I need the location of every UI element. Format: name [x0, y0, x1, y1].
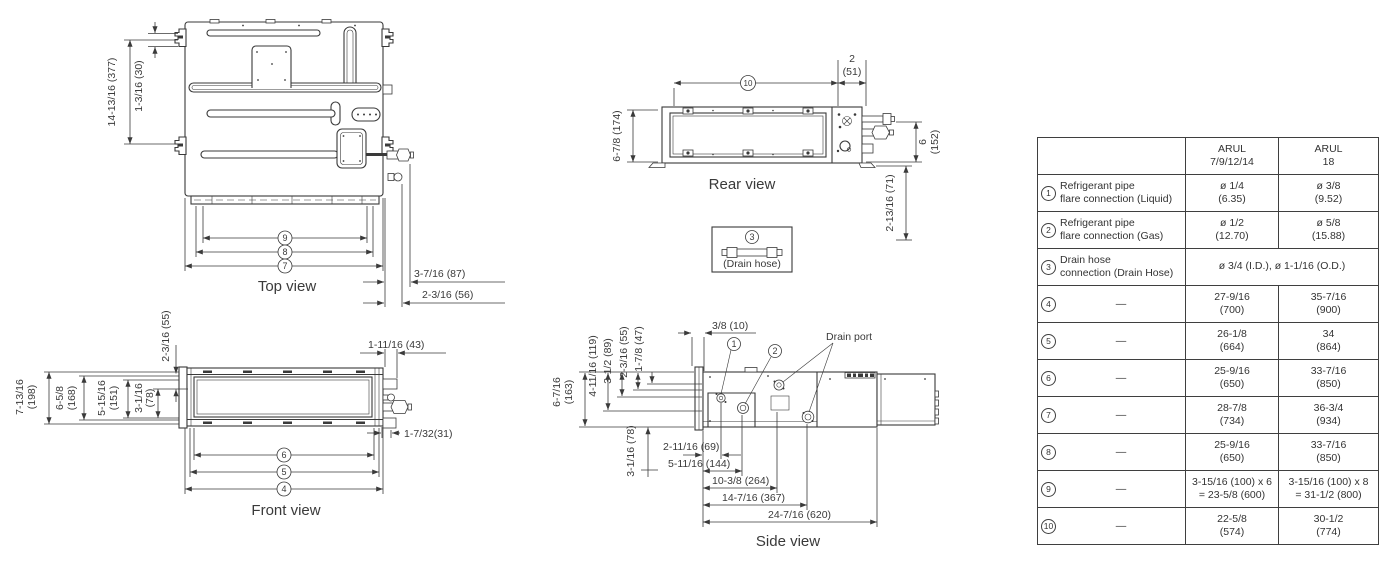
dim-label: 3/8 (10)	[712, 320, 748, 332]
dim-label: (198)	[26, 385, 38, 410]
row-description: —	[1060, 520, 1182, 533]
ref-circle-2: 2	[772, 346, 777, 356]
dim-label: 2-13/16 (71)	[884, 174, 896, 231]
row-value-arul-18: 33-7/16 (850)	[1279, 434, 1379, 471]
side-view: 1 2 Drain port 3/8 (10) 6-7/16 (163) 4-1…	[551, 320, 939, 550]
mounting-plate	[252, 46, 291, 88]
row-description: Refrigerant pipe flare connection (Gas)	[1060, 217, 1182, 242]
ref-num: 6	[1041, 371, 1056, 386]
ref-num: 8	[1041, 445, 1056, 460]
row-description: Refrigerant pipe flare connection (Liqui…	[1060, 180, 1182, 205]
rear-view: 10 2 (51) 6-7/8 (174) 6 (152) 2-13/16 (7…	[611, 53, 941, 240]
table-row: 5— 26-1/8 (664) 34 (864)	[1038, 323, 1379, 360]
drain-hose-legend: 3 (Drain hose)	[712, 227, 792, 272]
gas-pipe-port	[738, 403, 749, 414]
small-bolt-pipe	[388, 173, 402, 181]
dim-label: 2-3/16 (55)	[618, 326, 630, 377]
row-value-arul-7-14: 28-7/8 (734)	[1186, 397, 1279, 434]
dim-label: (152)	[929, 130, 941, 155]
row-value-arul-7-14: 3-15/16 (100) x 6 = 23-5/8 (600)	[1186, 471, 1279, 508]
dim-label: 6-7/16	[551, 377, 563, 407]
drain-port-label: Drain port	[826, 331, 872, 343]
ref-num: 10	[1041, 519, 1056, 534]
dim-label: 10-3/8 (264)	[712, 475, 769, 487]
top-view: 14-13/16 (377) 1-3/16 (30) 9 8 7 3-7/16 …	[106, 20, 505, 308]
row-value-arul-7-14: 22-5/8 (574)	[1186, 508, 1279, 545]
side-view-unit-outline	[703, 372, 877, 427]
ref-num: 5	[1041, 334, 1056, 349]
row-value-arul-7-14: 25-9/16 (650)	[1186, 434, 1279, 471]
front-view-title: Front view	[251, 502, 320, 519]
ref-num: 4	[1041, 297, 1056, 312]
col-header-arul-7-14: ARUL 7/9/12/14	[1186, 138, 1279, 175]
table-row: 7— 28-7/8 (734) 36-3/4 (934)	[1038, 397, 1379, 434]
dim-label: (51)	[843, 66, 862, 78]
front-pipes	[383, 379, 412, 428]
ref-circle-7: 7	[282, 261, 287, 271]
header-empty	[1038, 138, 1186, 175]
drain-hose-caption: (Drain hose)	[723, 258, 781, 270]
dim-label: 6	[917, 139, 929, 145]
row-value-both: ø 3/4 (I.D.), ø 1-1/16 (O.D.)	[1186, 249, 1379, 286]
top-view-title: Top view	[258, 278, 317, 295]
dim-label: 1-3/16 (30)	[133, 60, 145, 111]
dim-label: 2-3/16 (55)	[160, 310, 172, 361]
row-description: Drain hose connection (Drain Hose)	[1060, 254, 1182, 279]
table-row: 3Drain hose connection (Drain Hose) ø 3/…	[1038, 249, 1379, 286]
dim-label: 14-13/16 (377)	[106, 58, 118, 127]
row-description: —	[1060, 372, 1182, 385]
side-tab	[383, 85, 392, 94]
dim-label: 3-1/2 (89)	[602, 338, 614, 384]
ref-num: 3	[1041, 260, 1056, 275]
dim-label: 3-7/16 (87)	[414, 268, 465, 280]
dim-label: 24-7/16 (620)	[768, 509, 831, 521]
drain-hose-icon	[722, 248, 782, 258]
ref-num: 1	[1041, 186, 1056, 201]
front-view: 7-13/16 (198) 6-5/8 (168) 5-15/16 (151) …	[14, 310, 452, 519]
ref-circle-6: 6	[281, 450, 286, 460]
row-description: —	[1060, 483, 1182, 496]
dim-label: (78)	[144, 389, 156, 408]
table-header-row: ARUL 7/9/12/14 ARUL 18	[1038, 138, 1379, 175]
row-value-arul-18: ø 5/8 (15.88)	[1279, 212, 1379, 249]
ref-circle-9: 9	[282, 233, 287, 243]
dimension-drawing-page: 14-13/16 (377) 1-3/16 (30) 9 8 7 3-7/16 …	[0, 0, 1395, 566]
dim-label: 1-11/16 (43)	[368, 339, 424, 351]
ref-num: 7	[1041, 408, 1056, 423]
dim-label: 6-7/8 (174)	[611, 110, 623, 161]
row-description: —	[1060, 335, 1182, 348]
row-description: —	[1060, 409, 1182, 422]
ref-circle-3: 3	[749, 232, 754, 242]
table-row: 6— 25-9/16 (650) 33-7/16 (850)	[1038, 360, 1379, 397]
dim-label: 2	[849, 53, 855, 65]
liquid-pipe-port	[717, 394, 725, 402]
row-value-arul-18: 34 (864)	[1279, 323, 1379, 360]
dim-label: 6-5/8	[54, 386, 66, 410]
ref-circle-8: 8	[282, 247, 287, 257]
row-value-arul-18: 35-7/16 (900)	[1279, 286, 1379, 323]
dim-label: 4-11/16 (119)	[587, 335, 599, 396]
dim-label: (163)	[563, 380, 575, 405]
ref-circle-5: 5	[281, 467, 286, 477]
ref-circle-10: 10	[744, 79, 753, 88]
dim-label: (168)	[66, 386, 78, 411]
dim-label: 14-7/16 (367)	[722, 492, 785, 504]
control-box	[877, 374, 935, 425]
dim-label: 1-7/32(31)	[404, 428, 452, 440]
row-value-arul-18: ø 3/8 (9.52)	[1279, 175, 1379, 212]
ref-num: 2	[1041, 223, 1056, 238]
row-value-arul-18: 30-1/2 (774)	[1279, 508, 1379, 545]
ref-circle-4: 4	[281, 484, 286, 494]
foot-right	[859, 163, 875, 168]
side-view-title: Side view	[756, 533, 820, 550]
row-value-arul-18: 33-7/16 (850)	[1279, 360, 1379, 397]
dim-label: (151)	[108, 386, 120, 411]
dim-label: 2-11/16 (69)	[663, 441, 719, 453]
dim-label: 7-13/16	[14, 379, 26, 415]
flare-valve	[387, 149, 414, 161]
table-row: 8— 25-9/16 (650) 33-7/16 (850)	[1038, 434, 1379, 471]
row-value-arul-7-14: ø 1/2 (12.70)	[1186, 212, 1279, 249]
row-value-arul-7-14: ø 1/4 (6.35)	[1186, 175, 1279, 212]
spec-table: ARUL 7/9/12/14 ARUL 18 1Refrigerant pipe…	[1037, 137, 1379, 545]
table-row: 10— 22-5/8 (574) 30-1/2 (774)	[1038, 508, 1379, 545]
row-description: —	[1060, 446, 1182, 459]
dim-label: 1-7/8 (47)	[633, 326, 645, 372]
row-value-arul-18: 36-3/4 (934)	[1279, 397, 1379, 434]
table-row: 9— 3-15/16 (100) x 6 = 23-5/8 (600) 3-15…	[1038, 471, 1379, 508]
rear-pipes	[862, 114, 895, 154]
ref-num: 9	[1041, 482, 1056, 497]
row-value-arul-7-14: 27-9/16 (700)	[1186, 286, 1279, 323]
row-value-arul-7-14: 25-9/16 (650)	[1186, 360, 1279, 397]
dim-label: 5-11/16 (144)	[668, 458, 730, 470]
dim-label: 2-3/16 (56)	[422, 289, 473, 301]
rear-view-title: Rear view	[709, 176, 776, 193]
col-header-arul-18: ARUL 18	[1279, 138, 1379, 175]
foot-left	[649, 163, 665, 168]
table-row: 2Refrigerant pipe flare connection (Gas)…	[1038, 212, 1379, 249]
ref-circle-1: 1	[731, 339, 736, 349]
front-left-flange	[179, 367, 187, 428]
table-row: 4— 27-9/16 (700) 35-7/16 (900)	[1038, 286, 1379, 323]
row-value-arul-18: 3-15/16 (100) x 8 = 31-1/2 (800)	[1279, 471, 1379, 508]
dimensional-drawings: 14-13/16 (377) 1-3/16 (30) 9 8 7 3-7/16 …	[0, 0, 1030, 566]
table-row: 1Refrigerant pipe flare connection (Liqu…	[1038, 175, 1379, 212]
row-description: —	[1060, 298, 1182, 311]
dim-label: 5-15/16	[96, 380, 108, 416]
dim-label: 3-1/16 (78)	[625, 425, 637, 476]
row-value-arul-7-14: 26-1/8 (664)	[1186, 323, 1279, 360]
